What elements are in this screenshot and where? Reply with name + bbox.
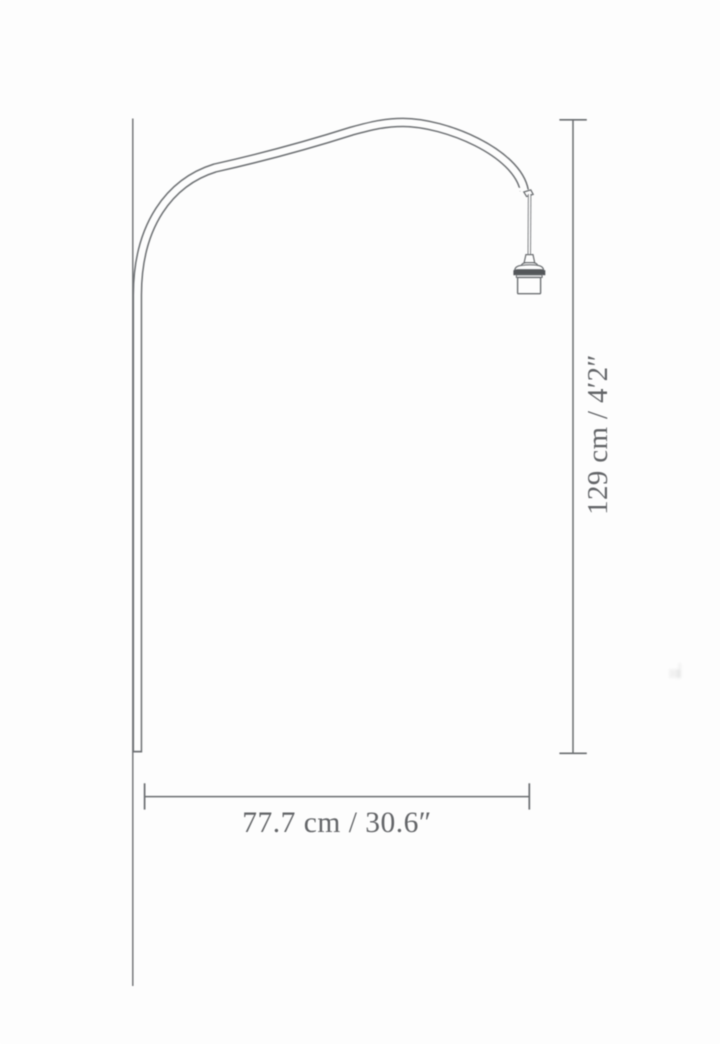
svg-text:129 cm / 4′2″: 129 cm / 4′2″ — [582, 354, 614, 515]
svg-text:77.7 cm / 30.6″: 77.7 cm / 30.6″ — [242, 807, 431, 839]
